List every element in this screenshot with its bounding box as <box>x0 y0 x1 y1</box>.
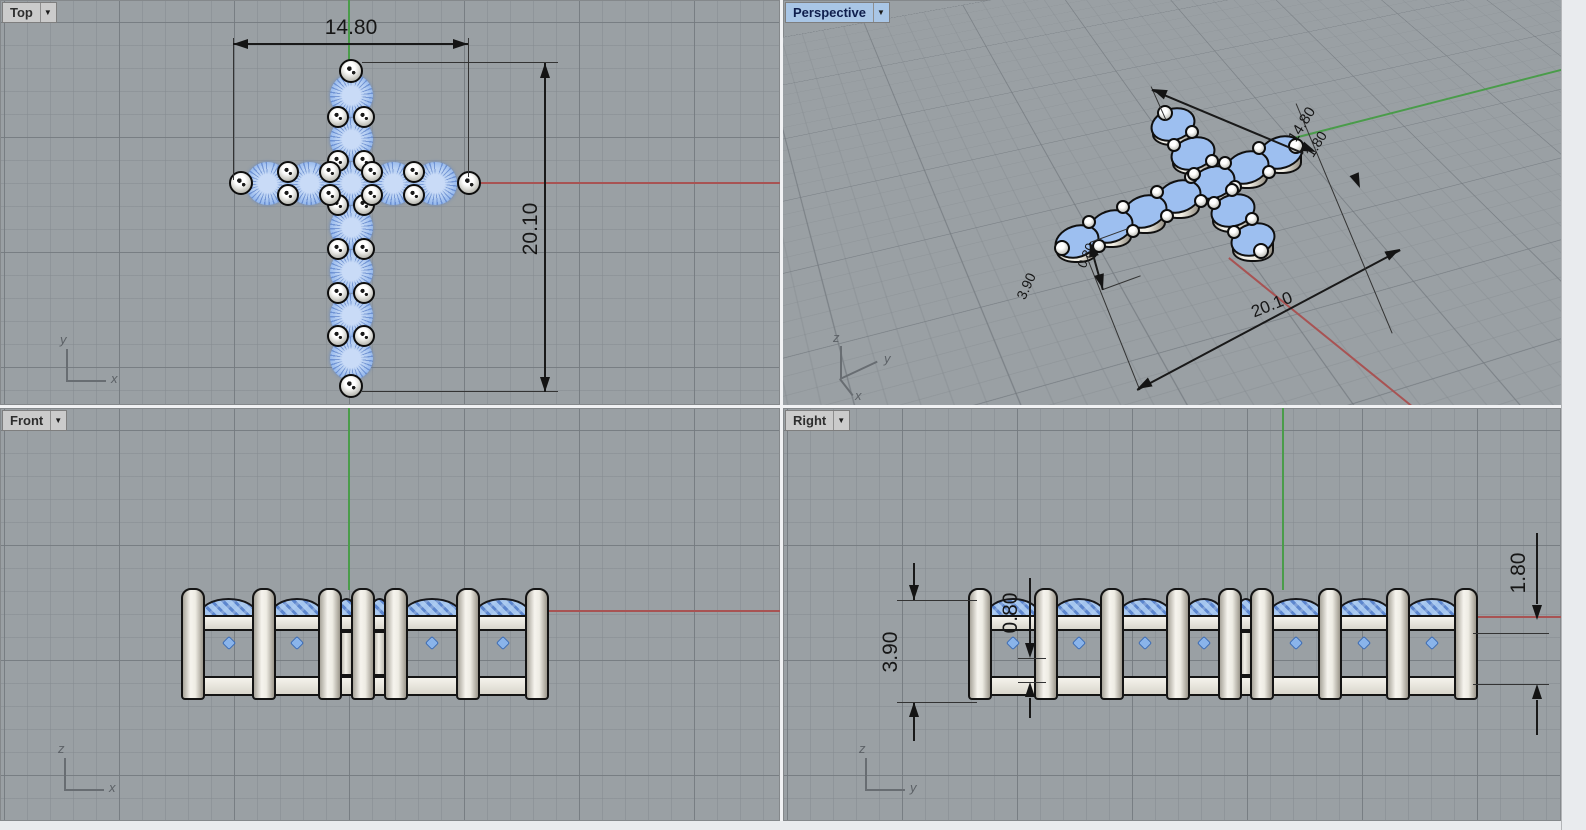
viewport-tab-perspective-label: Perspective <box>786 5 873 20</box>
top-rail <box>474 615 531 631</box>
axis-widget-x-line <box>66 380 106 382</box>
dim-arrow-icon <box>540 63 550 78</box>
dim-line <box>544 63 546 392</box>
dim-line <box>1536 533 1538 604</box>
metal-bead <box>277 161 299 183</box>
metal-bead <box>327 282 349 304</box>
gem-culet-drop <box>1072 636 1086 650</box>
metal-bead <box>403 184 425 206</box>
metal-bead <box>1262 165 1276 179</box>
dim-extension-line <box>1473 684 1549 685</box>
fence-post <box>1386 588 1410 700</box>
axis-widget-y-line <box>66 349 68 381</box>
gem-scallop <box>199 598 258 615</box>
viewport-tab-perspective-menu-arrow-icon[interactable]: ▼ <box>874 2 889 23</box>
dim-arrow-icon <box>909 702 919 717</box>
axis-widget-z-label: z <box>58 741 65 756</box>
viewport-tab-front[interactable]: Front ▼ <box>2 410 67 431</box>
dim-arrow-icon <box>1025 682 1035 697</box>
bottom-rail <box>474 676 531 696</box>
gem-scallop <box>1336 598 1392 615</box>
metal-bead <box>353 282 375 304</box>
fence-post <box>1318 588 1342 700</box>
gem-scallop <box>1118 598 1172 615</box>
gem-scallop <box>1404 598 1460 615</box>
axis-widget-z-label: z <box>833 330 840 345</box>
gem-scallop <box>402 598 462 615</box>
z-axis-line <box>348 408 350 590</box>
dim-arrow-icon <box>233 39 248 49</box>
metal-bead <box>319 184 341 206</box>
viewport-tab-perspective[interactable]: Perspective ▼ <box>785 2 890 23</box>
top-rail <box>1118 615 1172 631</box>
x-axis-line <box>547 610 780 612</box>
metal-bead <box>327 106 349 128</box>
metal-bead <box>1207 196 1221 210</box>
top-rail <box>1052 615 1106 631</box>
z-axis-line <box>1282 408 1284 590</box>
viewport-tab-front-label: Front <box>3 413 50 428</box>
dimension-label: 20.10 <box>519 184 543 274</box>
metal-bead <box>319 161 341 183</box>
viewport-splitter-horizontal[interactable] <box>0 405 1561 408</box>
viewport-tab-right-label: Right <box>786 413 833 428</box>
window-right-edge <box>1561 0 1586 830</box>
metal-bead <box>1126 224 1140 238</box>
axis-widget-y-line <box>865 789 905 791</box>
dim-extension-line <box>1473 633 1549 634</box>
top-rail <box>199 615 258 631</box>
bottom-rail <box>1118 676 1172 696</box>
dim-extension-line <box>233 38 234 180</box>
metal-bead <box>327 238 349 260</box>
gem-culet-drop <box>1138 636 1152 650</box>
fence-post <box>456 588 480 700</box>
bottom-rail <box>1404 676 1460 696</box>
dimension-label: 14.80 <box>301 16 401 40</box>
axis-widget-x-line <box>64 789 104 791</box>
axis-widget-x-label: x <box>111 371 118 386</box>
window-bottom-edge <box>0 821 1561 830</box>
metal-bead <box>1253 243 1269 259</box>
metal-bead <box>1187 167 1201 181</box>
dim-line <box>233 43 468 45</box>
dim-extension-line <box>468 38 469 177</box>
fence-post <box>1250 588 1274 700</box>
bottom-rail <box>1268 676 1324 696</box>
metal-bead <box>353 325 375 347</box>
viewport-splitter-vertical[interactable] <box>780 0 783 821</box>
fence-post <box>1034 588 1058 700</box>
metal-bead <box>327 325 349 347</box>
gem-scallop <box>270 598 324 615</box>
x-axis-line <box>470 182 780 184</box>
top-rail <box>1268 615 1324 631</box>
metal-bead <box>1218 156 1232 170</box>
gem-culet-drop <box>1289 636 1303 650</box>
viewport-front-canvas[interactable]: z x Front ▼ <box>0 408 780 821</box>
bottom-rail <box>402 676 462 696</box>
viewport-tab-right-menu-arrow-icon[interactable]: ▼ <box>834 410 849 431</box>
bottom-rail <box>1336 676 1392 696</box>
top-rail <box>402 615 462 631</box>
metal-bead <box>1167 138 1181 152</box>
metal-bead <box>1116 200 1130 214</box>
dim-arrow-icon <box>909 585 919 600</box>
metal-bead <box>457 171 481 195</box>
metal-bead <box>403 161 425 183</box>
viewport-top-canvas[interactable]: 14.80 20.10 y x Top ▼ <box>0 0 780 405</box>
dim-extension-line <box>1018 682 1046 683</box>
fence-post <box>351 588 375 700</box>
metal-bead <box>339 59 363 83</box>
gem-culet-drop <box>290 636 304 650</box>
dim-extension-line <box>1018 658 1046 659</box>
gem-scallop <box>1052 598 1106 615</box>
metal-bead <box>361 184 383 206</box>
axis-widget-x-label: x <box>109 780 116 795</box>
dim-line <box>1029 578 1031 643</box>
fence-post <box>181 588 205 700</box>
axis-widget-x-label: x <box>855 388 862 403</box>
gem-culet-drop <box>1425 636 1439 650</box>
fence-post <box>1166 588 1190 700</box>
bottom-rail <box>199 676 258 696</box>
fence-post <box>968 588 992 700</box>
dim-line <box>1029 698 1031 718</box>
fence-post <box>1100 588 1124 700</box>
fence-post <box>525 588 549 700</box>
metal-bead <box>1227 225 1241 239</box>
metal-bead <box>339 374 363 398</box>
viewport-tab-top-label: Top <box>3 5 40 20</box>
metal-bead <box>277 184 299 206</box>
top-rail <box>1336 615 1392 631</box>
axis-widget-z-label: z <box>859 741 866 756</box>
dim-arrow-icon <box>1025 643 1035 658</box>
bottom-rail <box>1052 676 1106 696</box>
fence-post <box>252 588 276 700</box>
metal-bead <box>1054 240 1070 256</box>
gem-culet-drop <box>1357 636 1371 650</box>
dim-arrow-icon <box>1532 605 1542 620</box>
axis-widget-y-label: y <box>884 351 891 366</box>
dimension-label: 0.80 <box>999 568 1023 658</box>
axis-widget-z-line <box>64 758 66 790</box>
metal-bead <box>1150 185 1164 199</box>
viewport-tab-front-menu-arrow-icon[interactable]: ▼ <box>51 410 66 431</box>
top-rail <box>270 615 324 631</box>
metal-bead <box>361 161 383 183</box>
bottom-rail <box>270 676 324 696</box>
axis-widget-y-label: y <box>910 780 917 795</box>
gem-culet-drop <box>425 636 439 650</box>
dim-extension-line <box>362 62 558 63</box>
top-rail <box>1404 615 1460 631</box>
dim-line <box>1536 700 1538 735</box>
dim-arrow-icon <box>1532 684 1542 699</box>
metal-bead <box>1252 141 1266 155</box>
axis-widget-z-line <box>865 758 867 790</box>
metal-bead <box>1245 212 1259 226</box>
fence-post <box>384 588 408 700</box>
metal-bead <box>353 238 375 260</box>
fence-post <box>318 588 342 700</box>
dim-arrow-icon <box>540 377 550 392</box>
metal-bead <box>353 106 375 128</box>
fence-post <box>1218 588 1242 700</box>
dimension-label: 3.90 <box>879 607 903 697</box>
viewport-right-canvas[interactable]: 3.90 0.80 1.80 z y Right ▼ <box>783 408 1561 821</box>
viewport-tab-top[interactable]: Top ▼ <box>2 2 57 23</box>
gem-culet-drop <box>1197 636 1211 650</box>
gem-scallop <box>1268 598 1324 615</box>
viewport-tab-top-menu-arrow-icon[interactable]: ▼ <box>41 2 56 23</box>
dimension-label: 1.80 <box>1507 528 1531 618</box>
gem-scallop <box>474 598 531 615</box>
gem-culet-drop <box>221 636 235 650</box>
dim-extension-line <box>362 391 558 392</box>
viewport-perspective-canvas[interactable]: 20.10 14.80 1.80 3.90 0.80 z y x Perspec… <box>783 0 1561 405</box>
axis-widget-y-label: y <box>60 332 67 347</box>
gem-culet-drop <box>495 636 509 650</box>
viewport-tab-right[interactable]: Right ▼ <box>785 410 850 431</box>
rhino-four-view-workspace: 14.80 20.10 y x Top ▼ 20.10 <box>0 0 1586 830</box>
dim-extension-line <box>897 600 977 601</box>
axis-widget-z-line <box>840 346 842 378</box>
dim-arrow-icon <box>453 39 468 49</box>
